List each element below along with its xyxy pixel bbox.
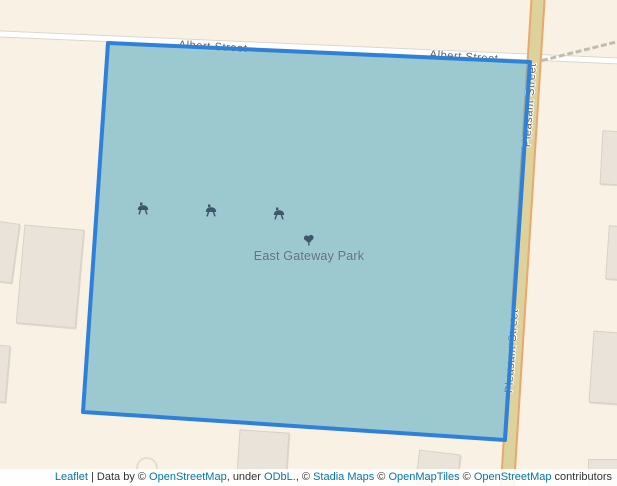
bbq-grill-icon (272, 207, 286, 221)
leaflet-link[interactable]: Leaflet (55, 471, 88, 483)
attribution-text: © (460, 471, 474, 483)
bbq-grill-icon (136, 202, 150, 216)
attribution-bar: Leaflet | Data by © OpenStreetMap, under… (0, 469, 617, 486)
openstreetmap-link[interactable]: OpenStreetMap (149, 471, 227, 483)
attribution-text: , under (227, 471, 264, 483)
attribution-text: | Data by © (88, 471, 149, 483)
openstreetmap-link[interactable]: OpenStreetMap (474, 471, 552, 483)
odbl-link[interactable]: ODbL. (264, 471, 296, 483)
openmaptiles-link[interactable]: OpenMapTiles (388, 471, 459, 483)
attribution-text: contributors (551, 471, 612, 483)
park-name-label: East Gateway Park (254, 249, 364, 263)
attribution-text: , © (296, 471, 313, 483)
map-canvas[interactable]: Albert Street Albert Street Pleasant Str… (0, 0, 617, 486)
stadia-maps-link[interactable]: Stadia Maps (313, 471, 374, 483)
bbq-grill-icon (204, 204, 218, 218)
tree-icon (303, 234, 316, 247)
attribution-text: © (374, 471, 388, 483)
